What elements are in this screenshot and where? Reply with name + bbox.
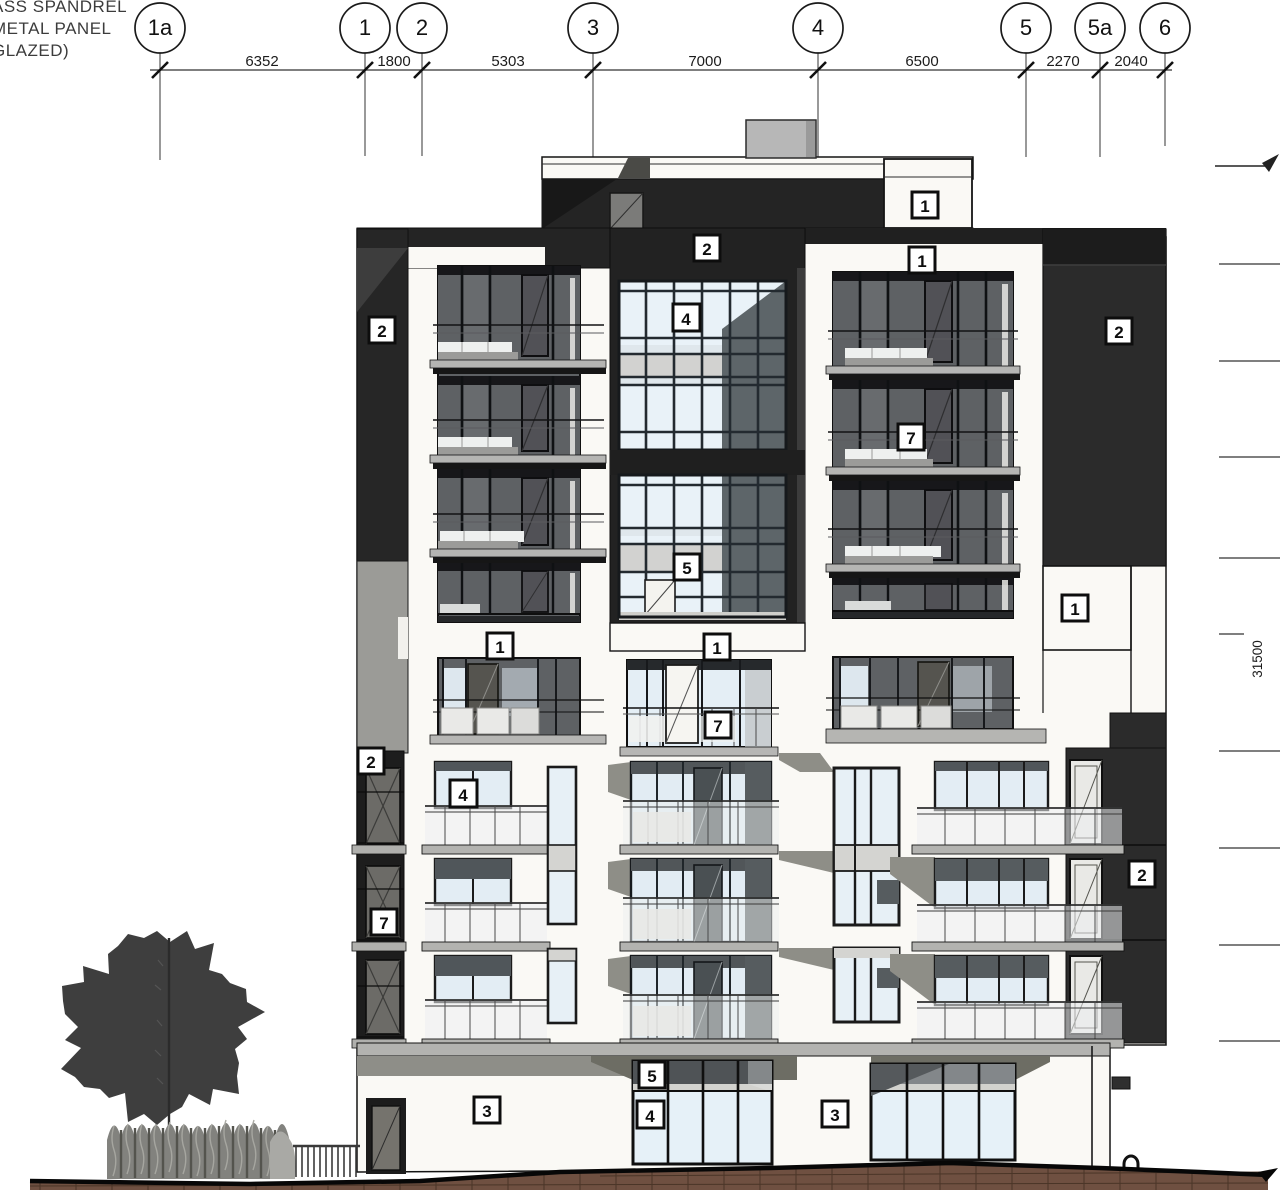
svg-text:5: 5: [647, 1067, 656, 1086]
svg-text:6352: 6352: [245, 53, 278, 70]
svg-text:1800: 1800: [377, 53, 410, 70]
svg-text:7: 7: [906, 429, 915, 448]
svg-text:2270: 2270: [1046, 53, 1079, 70]
svg-text:3: 3: [587, 15, 599, 40]
svg-text:7: 7: [379, 914, 388, 933]
svg-text:5: 5: [682, 559, 691, 578]
svg-text:METAL PANEL: METAL PANEL: [0, 19, 112, 38]
svg-text:ASS SPANDREL: ASS SPANDREL: [0, 0, 127, 16]
svg-text:4: 4: [458, 786, 468, 805]
svg-text:5: 5: [1020, 15, 1032, 40]
svg-text:4: 4: [645, 1107, 655, 1126]
svg-text:7: 7: [713, 717, 722, 736]
svg-text:GLAZED): GLAZED): [0, 41, 69, 60]
svg-text:1: 1: [920, 197, 929, 216]
svg-text:6: 6: [1159, 15, 1171, 40]
svg-text:2: 2: [377, 322, 386, 341]
svg-text:1: 1: [359, 15, 371, 40]
svg-text:4: 4: [812, 15, 824, 40]
svg-text:5a: 5a: [1088, 15, 1113, 40]
svg-text:4: 4: [681, 310, 691, 329]
svg-text:2: 2: [702, 240, 711, 259]
svg-text:5303: 5303: [491, 53, 524, 70]
svg-text:1: 1: [1070, 600, 1079, 619]
svg-text:2: 2: [1114, 323, 1123, 342]
svg-text:2040: 2040: [1114, 53, 1147, 70]
svg-text:1: 1: [495, 638, 504, 657]
svg-text:1: 1: [712, 639, 721, 658]
svg-text:1: 1: [917, 252, 926, 271]
svg-text:6500: 6500: [905, 53, 938, 70]
svg-text:2: 2: [1137, 866, 1146, 885]
svg-text:3: 3: [482, 1102, 491, 1121]
svg-text:3: 3: [830, 1106, 839, 1125]
svg-text:7000: 7000: [688, 53, 721, 70]
svg-text:1a: 1a: [148, 15, 173, 40]
svg-text:2: 2: [366, 753, 375, 772]
svg-text:2: 2: [416, 15, 428, 40]
svg-text:31500: 31500: [1250, 640, 1265, 678]
